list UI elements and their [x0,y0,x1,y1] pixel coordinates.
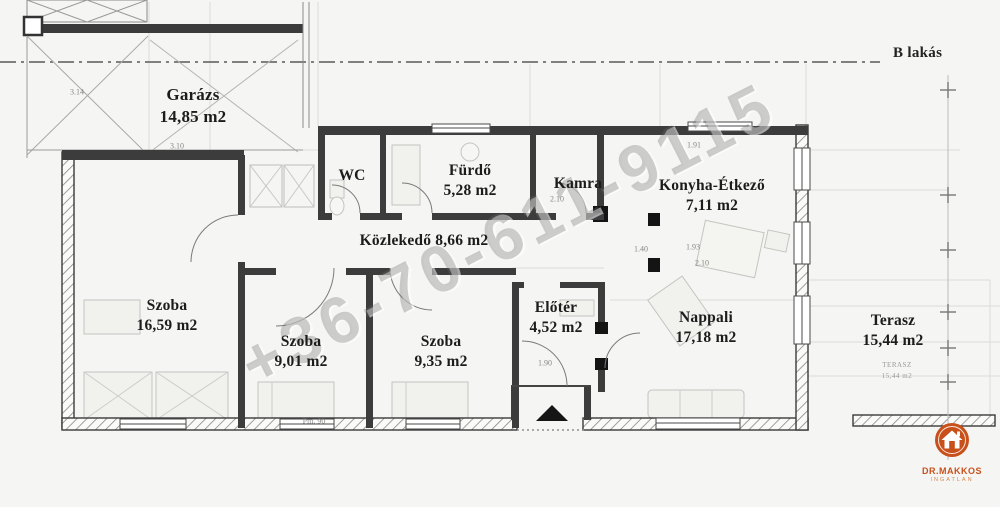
dimension-label: 1.40 [634,245,648,254]
dimension-label: 2.10 [550,195,564,204]
room-name: Kamra [554,175,602,192]
room-area: 9,01 m2 [274,352,327,372]
room-name: Szoba [281,333,322,350]
room-name: Terasz [871,312,916,329]
room-label-nappali: Nappali 17,18 m2 [675,308,736,348]
dimension-label: 1.93 [686,243,700,252]
room-area: 17,18 m2 [675,328,736,348]
house-icon [916,420,988,460]
room-name: Fürdő [449,162,491,179]
dimension-label: 3.14 [70,88,84,97]
terrace-note: TERASZ 15,44 m2 [882,360,912,381]
room-area: 7,11 m2 [659,196,765,216]
dimension-label: 3.10 [170,142,184,151]
entrance-arrow-icon [536,405,568,421]
room-label-garazs: Garázs 14,85 m2 [160,84,227,128]
dimension-label: 2.10 [695,259,709,268]
room-area: 16,59 m2 [136,316,197,336]
room-name: Szoba [147,297,188,314]
room-name: Előtér [535,299,578,316]
dimension-label: Pm. 90 [303,417,326,426]
room-area: 5,28 m2 [443,181,496,201]
dimension-label: 1.90 [538,359,552,368]
agency-logo: DR.MAKKOS INGATLAN [914,420,990,483]
dimension-label: 1.91 [687,141,701,150]
room-label-furdo: Fürdő 5,28 m2 [443,161,496,201]
room-label-konyha-etkezo: Konyha-Étkező 7,11 m2 [659,176,765,216]
terrace-note-line1: TERASZ [882,360,912,371]
entrance-niche [511,385,591,430]
room-area: 4,52 m2 [529,318,582,338]
room-label-terasz: Terasz 15,44 m2 [862,311,923,351]
dimension-crosses [940,75,956,460]
room-label-wc: WC [338,166,365,186]
floorplan-drawing [0,0,1000,507]
room-area: 9,35 m2 [414,352,467,372]
page-title: B lakás [893,45,942,62]
room-label-kamra: Kamra [554,174,602,194]
room-label-szoba-2: Szoba 9,01 m2 [274,332,327,372]
room-label-eloter: Előtér 4,52 m2 [529,298,582,338]
room-label-szoba-3: Szoba 9,35 m2 [414,332,467,372]
room-label-kozlekedo: Közlekedő 8,66 m2 [360,231,489,251]
room-name: Garázs [166,85,219,104]
logo-brand-text: DR.MAKKOS [914,466,990,476]
room-area: 15,44 m2 [862,331,923,351]
room-name: Közlekedő 8,66 m2 [360,232,489,249]
floorplan: +36-70-611-9115 B lakás Garázs 14,85 m2 … [0,0,1000,507]
room-name: Konyha-Étkező [659,177,765,194]
room-label-szoba-1: Szoba 16,59 m2 [136,296,197,336]
room-area: 14,85 m2 [160,106,227,128]
room-name: WC [338,167,365,184]
room-name: Szoba [421,333,462,350]
terrace-note-line2: 15,44 m2 [882,371,912,382]
logo-sub-text: INGATLAN [914,477,990,483]
room-name: Nappali [679,309,733,326]
